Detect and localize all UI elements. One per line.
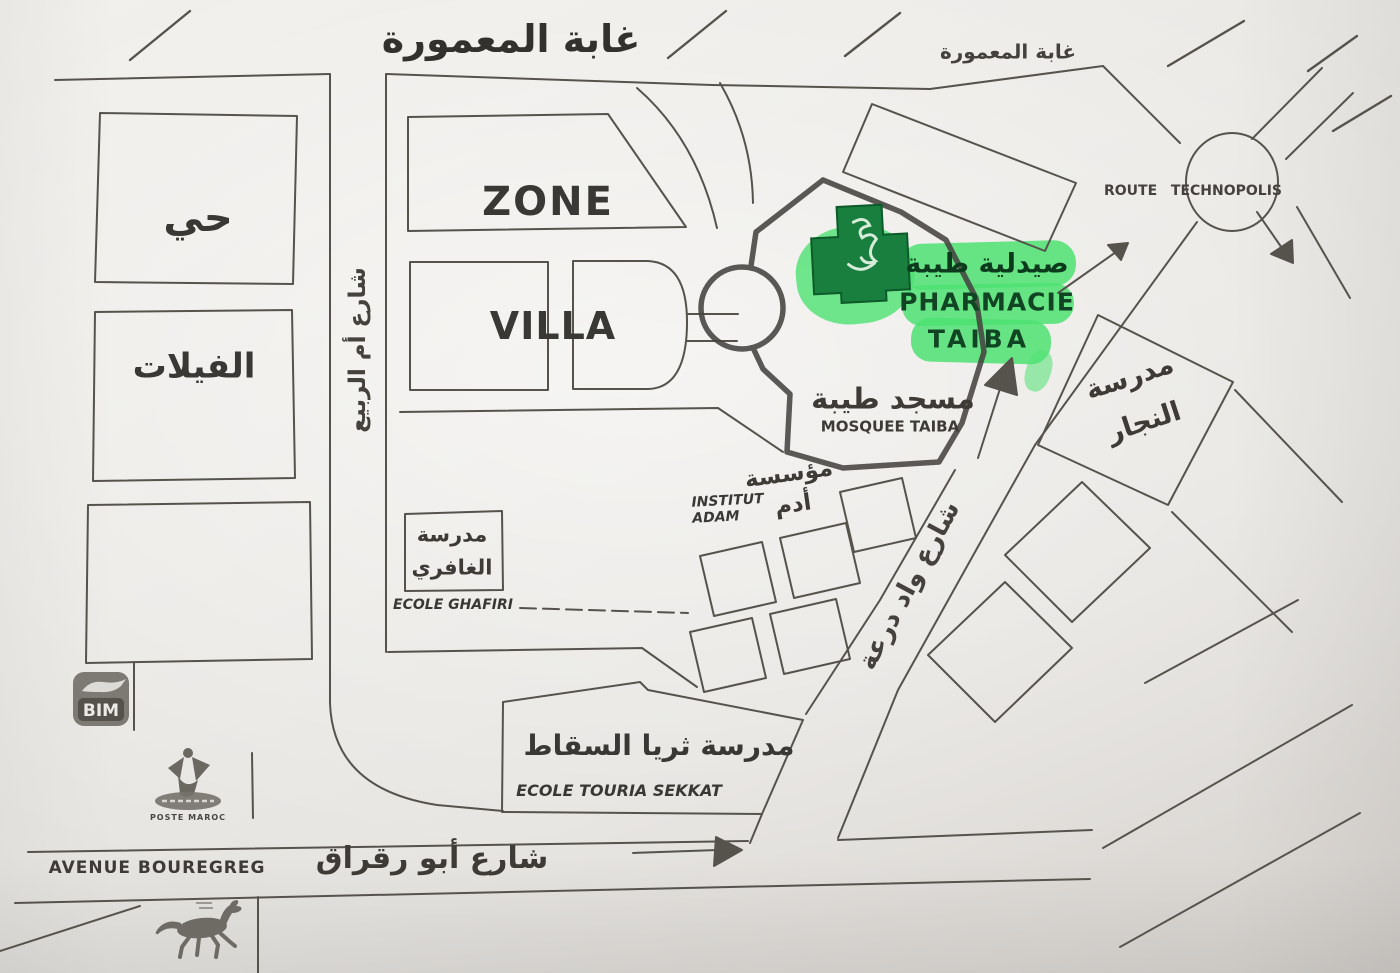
bim-logo-text: BIM [83,701,119,721]
mosque-name-arabic: مسجد طيبة [811,382,975,415]
curved-street-lines [637,83,753,228]
ghafiri-line2: الغافري [412,551,493,584]
street-under-villa [400,408,783,452]
pharmacy-name-line1: PHARMACIE [899,289,1075,318]
forest-title: غابة المعمورة [382,18,641,62]
one-way-arrow-up-icon [978,358,1017,458]
street-oum-rabii-label: شارع أم الربيع [345,267,371,433]
mosque-name-french: MOSQUEE TAIBA [821,418,959,435]
poste-maroc-text: POSTE MAROC [150,813,226,822]
poste-maroc-logo: POSTE MAROC [150,748,226,822]
pharmacy-name-arabic: صيدلية طيبة [905,248,1069,279]
sekkat-school-french: ECOLE TOURIA SEKKAT [516,782,722,800]
district-hay-label: حي [163,195,232,241]
avenue-bouregreg-french: AVENUE BOUREGREG [49,859,266,879]
forest-slash-icon [130,11,1391,131]
ghafiri-school-label: مدرسة الغافري [412,518,493,583]
one-way-arrow-down-icon [1257,212,1293,263]
technopolis-label: TECHNOPOLIS [1171,183,1282,199]
route-technopolis-label: ROUTETECHNOPOLIS [1104,183,1282,199]
route-label: ROUTE [1104,183,1157,199]
bim-logo: BIM [73,672,129,726]
map-canvas: BIM POSTE MAROC غابة المعمورة غابة المعم… [0,0,1400,973]
avenue-bouregreg-arabic: شارع أبو رقراق [316,842,548,877]
pharmacy-name-line2: TAIBA [928,326,1030,355]
horse-logo [156,900,242,957]
ghafiri-line1: مدرسة [412,518,493,551]
roundabout [1035,68,1353,445]
forest-title-right: غابة المعمورة [940,41,1076,64]
district-villas-label: الفيلات [133,347,256,386]
institut-adam-french: INSTITUT ADAM [691,491,765,527]
zone-label: ZONE [482,179,614,225]
side-street-lines [1172,390,1342,632]
forest-edge-line [55,66,1180,143]
hatch-street-lines [1103,600,1360,947]
ghafiri-school-french: ECOLE GHAFIRI [393,597,513,613]
map-linework: BIM POSTE MAROC [0,0,1400,973]
sekkat-school-arabic: مدرسة ثريا السقاط [524,730,795,762]
villa-label: VILLA [490,305,616,349]
pharmacy-cross-icon [810,203,911,304]
block-villas-outline [93,310,295,481]
